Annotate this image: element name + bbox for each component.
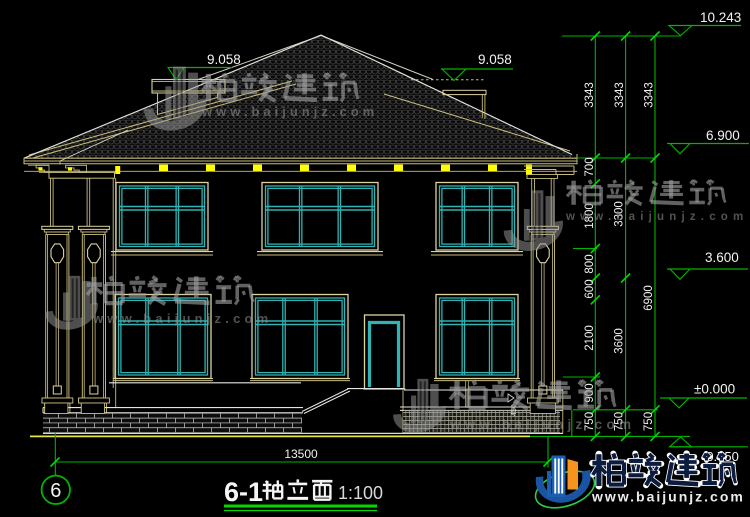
svg-text:www.baijunjz.com: www.baijunjz.com — [449, 417, 635, 432]
svg-text:6.900: 6.900 — [706, 128, 740, 143]
svg-text:1:100: 1:100 — [338, 483, 383, 503]
svg-text:6900: 6900 — [643, 285, 655, 311]
svg-text:3343: 3343 — [584, 82, 596, 108]
svg-text:3343: 3343 — [644, 82, 656, 108]
svg-text:9.058: 9.058 — [478, 52, 512, 67]
svg-text:750: 750 — [643, 412, 655, 431]
svg-text:6: 6 — [50, 480, 61, 502]
svg-text:6-1: 6-1 — [224, 477, 263, 507]
svg-text:±0.000: ±0.000 — [694, 382, 735, 397]
svg-text:13500: 13500 — [284, 447, 318, 461]
svg-text:www.baijunjz.com: www.baijunjz.com — [591, 489, 745, 505]
svg-text:9.058: 9.058 — [207, 52, 241, 67]
svg-text:3600: 3600 — [614, 328, 626, 354]
svg-text:800: 800 — [584, 254, 596, 273]
svg-text:www.baijunjz.com: www.baijunjz.com — [565, 211, 748, 223]
svg-text:3343: 3343 — [614, 82, 626, 108]
svg-text:600: 600 — [584, 279, 596, 298]
svg-text:10.243: 10.243 — [700, 10, 741, 25]
svg-text:700: 700 — [584, 157, 596, 176]
svg-text:www.baijunjz.com: www.baijunjz.com — [92, 311, 272, 326]
svg-text:3.600: 3.600 — [705, 250, 739, 265]
svg-text:2100: 2100 — [584, 325, 596, 351]
svg-text:www.baijunjz.com: www.baijunjz.com — [201, 104, 378, 119]
